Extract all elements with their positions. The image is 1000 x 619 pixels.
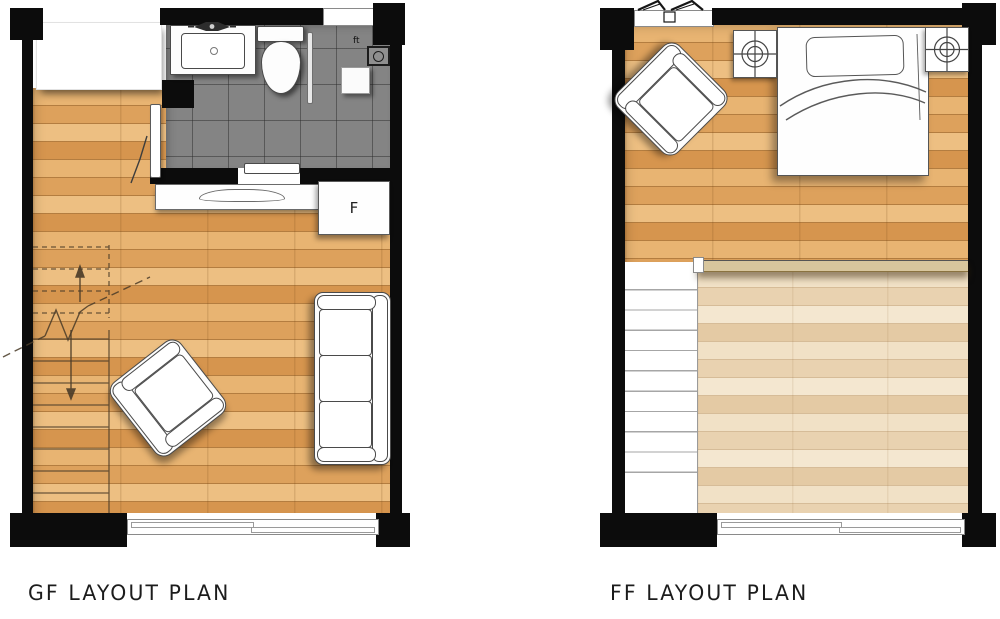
- fridge-label: F: [319, 182, 389, 234]
- ff-bottom-sliding-window: [717, 519, 965, 535]
- ff-casement-window: [634, 10, 714, 27]
- fridge: F: [318, 181, 390, 235]
- gf-corner-block-bottom-left: [10, 513, 127, 547]
- floor-plan-canvas: ft F: [0, 0, 1000, 619]
- gf-sofa: [314, 292, 391, 465]
- toilet-cistern: [257, 26, 304, 42]
- ff-corner-column-top-left: [600, 8, 634, 50]
- gf-bathroom-window: [323, 8, 375, 26]
- table-lamp-icon: [734, 31, 776, 77]
- nightstand-left: [733, 30, 777, 78]
- table-lamp-icon: [926, 28, 968, 71]
- mezzanine-railing: [697, 260, 968, 272]
- basin-drain: [210, 47, 218, 55]
- sofa-arm: [317, 447, 376, 462]
- ff-right-wall: [968, 25, 982, 513]
- gf-wall-stub: [162, 80, 194, 108]
- counter-basin: [199, 189, 285, 202]
- faucet-icon: [188, 20, 236, 33]
- ff-corner-block-bottom-right: [962, 513, 996, 547]
- ff-caption: FF LAYOUT PLAN: [610, 581, 808, 605]
- ff-left-wall: [612, 50, 625, 513]
- gf-plan: ft F: [0, 0, 500, 619]
- bed-pillow: [805, 35, 904, 78]
- gf-corner-block-bottom-right: [376, 513, 410, 547]
- ff-plan: FF LAYOUT PLAN: [500, 0, 1000, 619]
- gf-top-wall: [160, 8, 323, 25]
- vanity-counter: [170, 25, 256, 75]
- ff-staircase: [625, 270, 698, 513]
- floor-trap-icon: [367, 46, 390, 66]
- shower-screen: [307, 32, 313, 104]
- gf-corner-column-top-left: [10, 8, 43, 40]
- gf-right-wall: [390, 25, 402, 513]
- sofa-cushion: [319, 309, 372, 356]
- sofa-backrest: [372, 295, 388, 462]
- gf-bathroom-sliding-door: [244, 163, 300, 174]
- window-panel: [839, 527, 961, 533]
- floor-trap-label: ft: [353, 36, 360, 46]
- sofa-cushion: [319, 355, 372, 402]
- gf-left-wall: [22, 38, 33, 513]
- wash-basin: [181, 33, 245, 69]
- nightstand-right: [925, 27, 969, 72]
- shower-tray: [341, 67, 370, 94]
- window-panel: [131, 522, 254, 528]
- window-panel: [721, 522, 842, 528]
- gf-bottom-sliding-window: [127, 519, 379, 535]
- gf-caption: GF LAYOUT PLAN: [28, 581, 230, 605]
- ff-corner-block-bottom-left: [600, 513, 717, 547]
- bathroom-door-leaf: [150, 104, 161, 178]
- gf-wardrobe-cabinet: [36, 22, 162, 90]
- railing-end-post: [693, 257, 704, 273]
- sofa-arm: [317, 295, 376, 310]
- sofa-cushion: [319, 401, 372, 448]
- ff-top-wall: [712, 8, 968, 25]
- double-bed: [777, 27, 929, 176]
- ff-void-floor: [697, 270, 968, 513]
- window-panel: [251, 527, 375, 533]
- kitchen-counter: [155, 184, 320, 210]
